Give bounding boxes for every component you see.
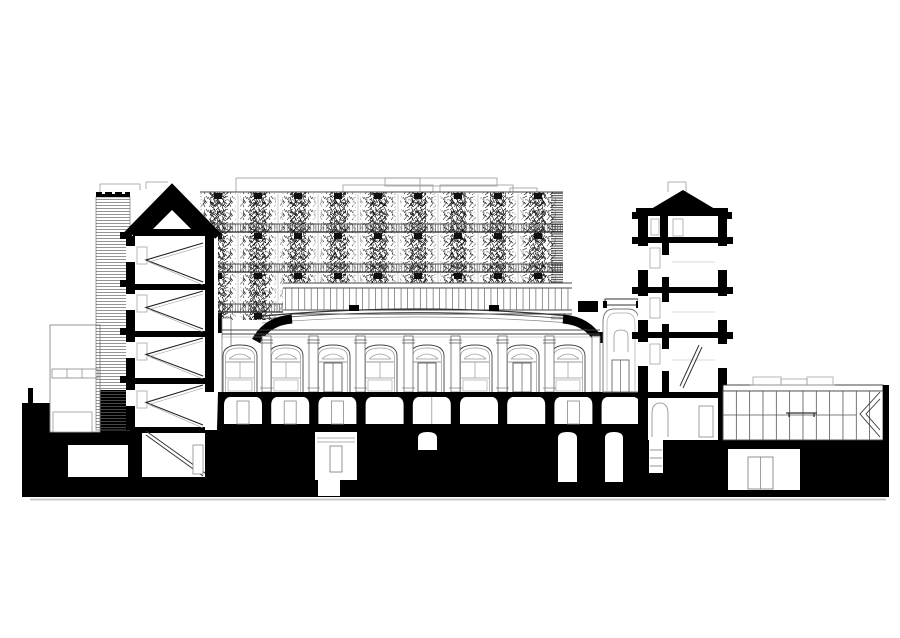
- planter-cap: [414, 273, 422, 279]
- rtower-attic-door-2: [673, 219, 683, 236]
- tower-cornice-bump: [120, 232, 126, 239]
- planter-cap: [254, 233, 262, 239]
- planter-cap: [334, 193, 342, 199]
- planter-cap: [494, 233, 502, 239]
- balcony-railing: [202, 224, 563, 232]
- roof-vent-right: [489, 305, 499, 311]
- small-building-inner-room: [53, 412, 92, 432]
- ground-black-mass: [28, 388, 33, 403]
- planter-cap: [254, 193, 262, 199]
- dome-pavilion: [603, 299, 640, 392]
- rtower-floor-slab: [648, 332, 718, 338]
- rtower-attic-door: [651, 219, 659, 235]
- hall-pilaster: [309, 336, 318, 392]
- planter-cap: [534, 233, 542, 239]
- rooftop-equipment: [781, 379, 807, 385]
- cellar-vault: [507, 397, 545, 425]
- planter-cap: [534, 273, 542, 279]
- planter-cap: [454, 233, 462, 239]
- rtower-attic-wall: [660, 210, 668, 238]
- basement-room: [649, 440, 663, 473]
- rtower-ground-door: [699, 406, 713, 437]
- rtower-window-left: [638, 246, 648, 270]
- parapet-outline: [510, 188, 537, 192]
- rtower-window-left: [638, 342, 648, 366]
- annex-roof-slab: [723, 385, 883, 391]
- hall-pilaster: [404, 336, 413, 392]
- hall-end-wall-right: [592, 336, 600, 392]
- basement-arched-room: [418, 432, 437, 450]
- tower-attic-slab: [133, 229, 215, 236]
- rtower-eave-band: [636, 208, 728, 216]
- basement-door: [193, 445, 203, 474]
- tower-cornice-bump: [120, 280, 126, 287]
- annex-end-wall: [883, 385, 889, 497]
- rear-roofline: [100, 184, 140, 192]
- planter-cap: [534, 193, 542, 199]
- tower-cornice-bump: [120, 328, 126, 335]
- planter-cap: [494, 273, 502, 279]
- rtower-floor-slab: [648, 287, 718, 293]
- rtower-window-left: [638, 296, 648, 320]
- rtower-bump-right: [727, 332, 733, 339]
- dome-cap-tab-left: [603, 301, 607, 308]
- ground-shadow-line: [30, 499, 886, 501]
- balcony-railing: [202, 264, 563, 272]
- planter-cap: [254, 273, 262, 279]
- basement-room: [68, 445, 128, 477]
- planter-cap: [454, 193, 462, 199]
- planter-cap: [214, 193, 222, 199]
- cellar-vault: [460, 397, 498, 425]
- hall-pilaster: [451, 336, 460, 392]
- hall-pilaster: [262, 336, 271, 392]
- hall-pilaster: [545, 336, 554, 392]
- roof-vent-left: [349, 305, 359, 311]
- cellar-vault: [366, 397, 404, 425]
- basement-arched-room: [558, 432, 577, 482]
- rtower-bump-right: [727, 287, 733, 294]
- tower-window-opening: [126, 294, 135, 310]
- rtower-bump-left: [632, 237, 638, 244]
- basement-sump: [318, 480, 340, 496]
- planter-cap: [294, 273, 302, 279]
- planter-cap: [374, 273, 382, 279]
- rooftop-equipment: [807, 377, 833, 385]
- hall-floor-slab: [213, 392, 648, 397]
- tower-rear-chimney-line: [146, 182, 168, 189]
- roof-corbel-right-top: [578, 301, 598, 312]
- planter-cap: [254, 313, 262, 319]
- basement-room: [315, 432, 357, 480]
- planter-cap: [414, 193, 422, 199]
- rtower-bump-left: [632, 332, 638, 339]
- planter-cap: [374, 193, 382, 199]
- dome-cap: [605, 299, 638, 305]
- planter-cap: [334, 233, 342, 239]
- rtower-door-gap: [662, 302, 669, 324]
- planter-cap: [494, 193, 502, 199]
- planter-cap: [454, 273, 462, 279]
- planter-cap: [414, 233, 422, 239]
- rtower-window-right: [718, 246, 727, 270]
- rtower-bump-left: [632, 287, 638, 294]
- tower-cornice-bump: [120, 376, 126, 383]
- planter-cap: [294, 233, 302, 239]
- tower-right-wall: [205, 236, 214, 392]
- tower-window-opening: [126, 390, 135, 406]
- rtower-door-gap: [662, 349, 669, 371]
- tower-floor-slab: [135, 284, 205, 290]
- hall-pilaster: [356, 336, 365, 392]
- planter-cap: [334, 273, 342, 279]
- tower-floor-slab: [135, 378, 205, 384]
- left-small-building: [50, 325, 100, 432]
- right-tower: [632, 182, 733, 440]
- hall-pilaster: [498, 336, 507, 392]
- rtower-window-right: [718, 296, 727, 320]
- rooftop-equipment: [753, 377, 781, 385]
- rtower-eave-wing-left: [632, 212, 638, 219]
- tower-floor-slab: [135, 331, 205, 337]
- basement-arched-room: [605, 432, 623, 482]
- small-building-window-band: [52, 369, 98, 378]
- rtower-bump-right: [727, 237, 733, 244]
- tower-window-opening: [126, 342, 135, 358]
- cellar-vault: [602, 397, 640, 425]
- rtower-door-gap: [662, 255, 669, 277]
- basement-room: [728, 449, 800, 490]
- planter-cap: [294, 193, 302, 199]
- planter-cap: [374, 233, 382, 239]
- rtower-ground-slab: [644, 392, 727, 398]
- tower-window-opening: [126, 246, 135, 262]
- architectural-section-drawing: [0, 0, 900, 638]
- rtower-window-right: [718, 344, 727, 368]
- rtower-floor-slab: [648, 237, 718, 243]
- section-drawing-svg: [0, 0, 900, 638]
- tower-floor-slab: [135, 427, 205, 433]
